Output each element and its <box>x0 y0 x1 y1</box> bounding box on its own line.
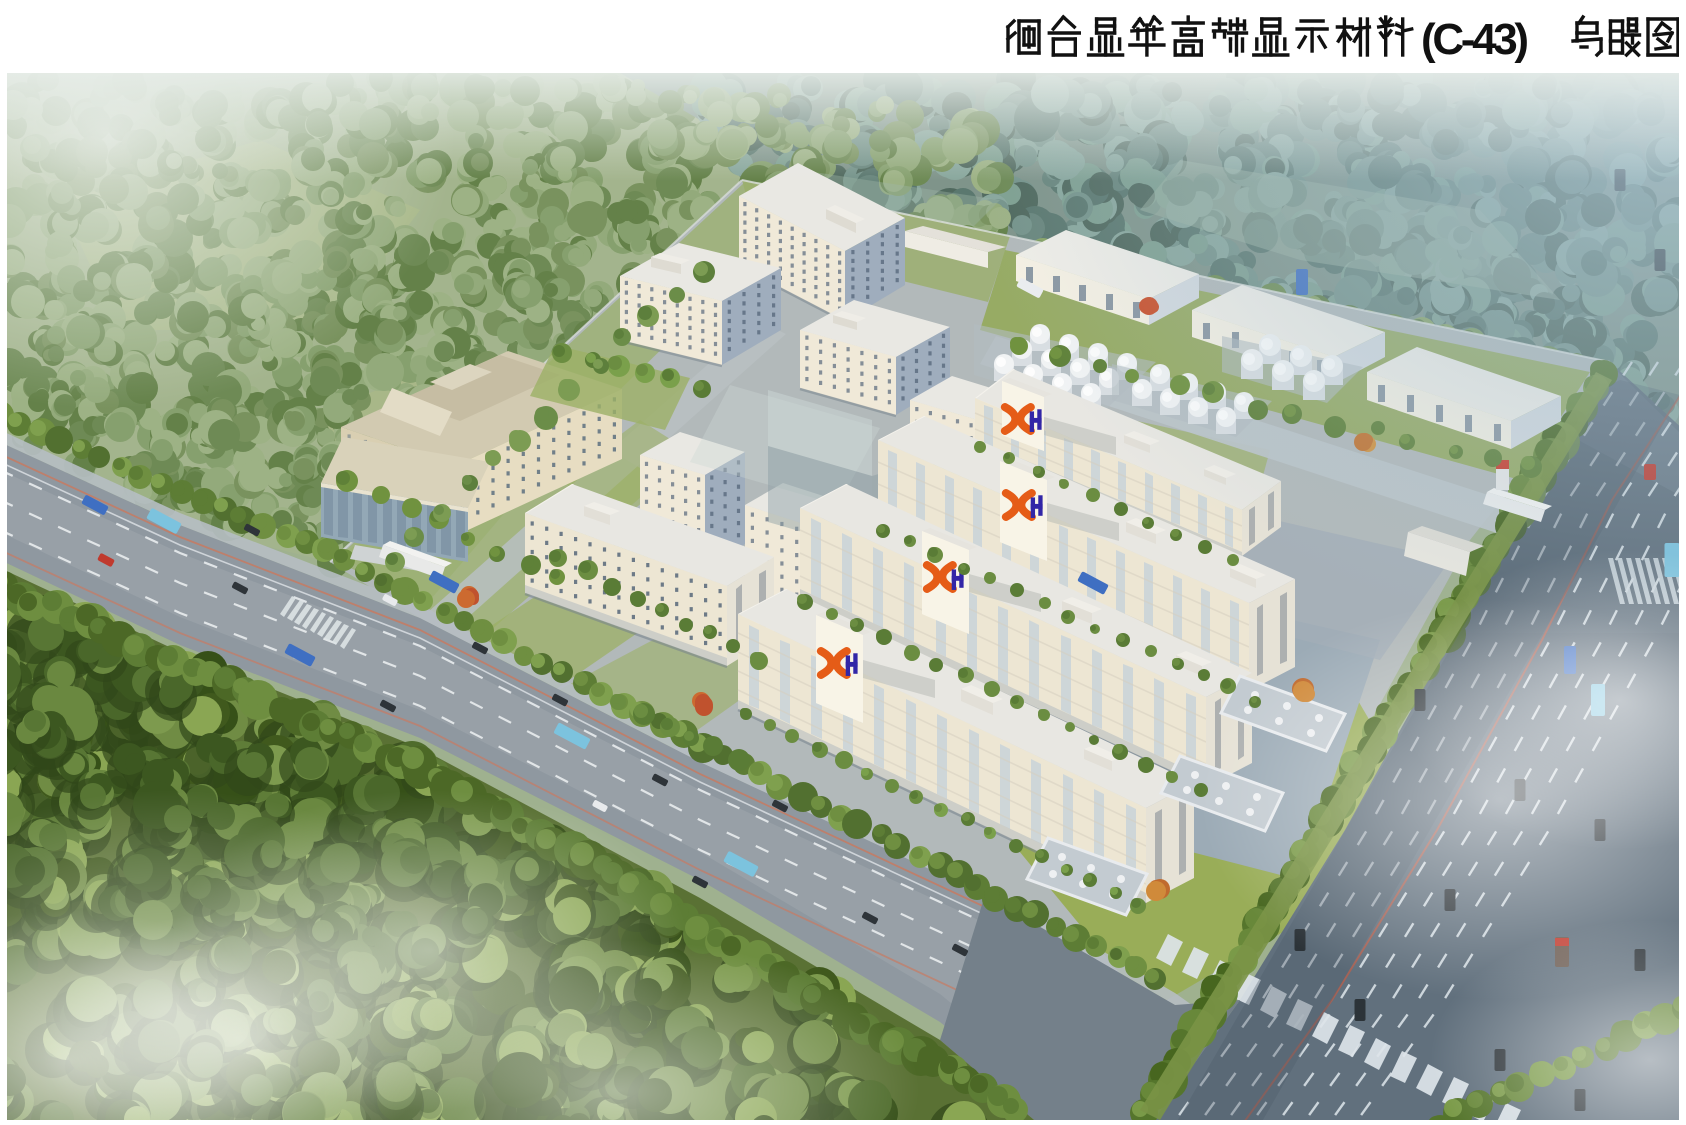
svg-text:(C-43): (C-43) <box>1421 15 1529 64</box>
